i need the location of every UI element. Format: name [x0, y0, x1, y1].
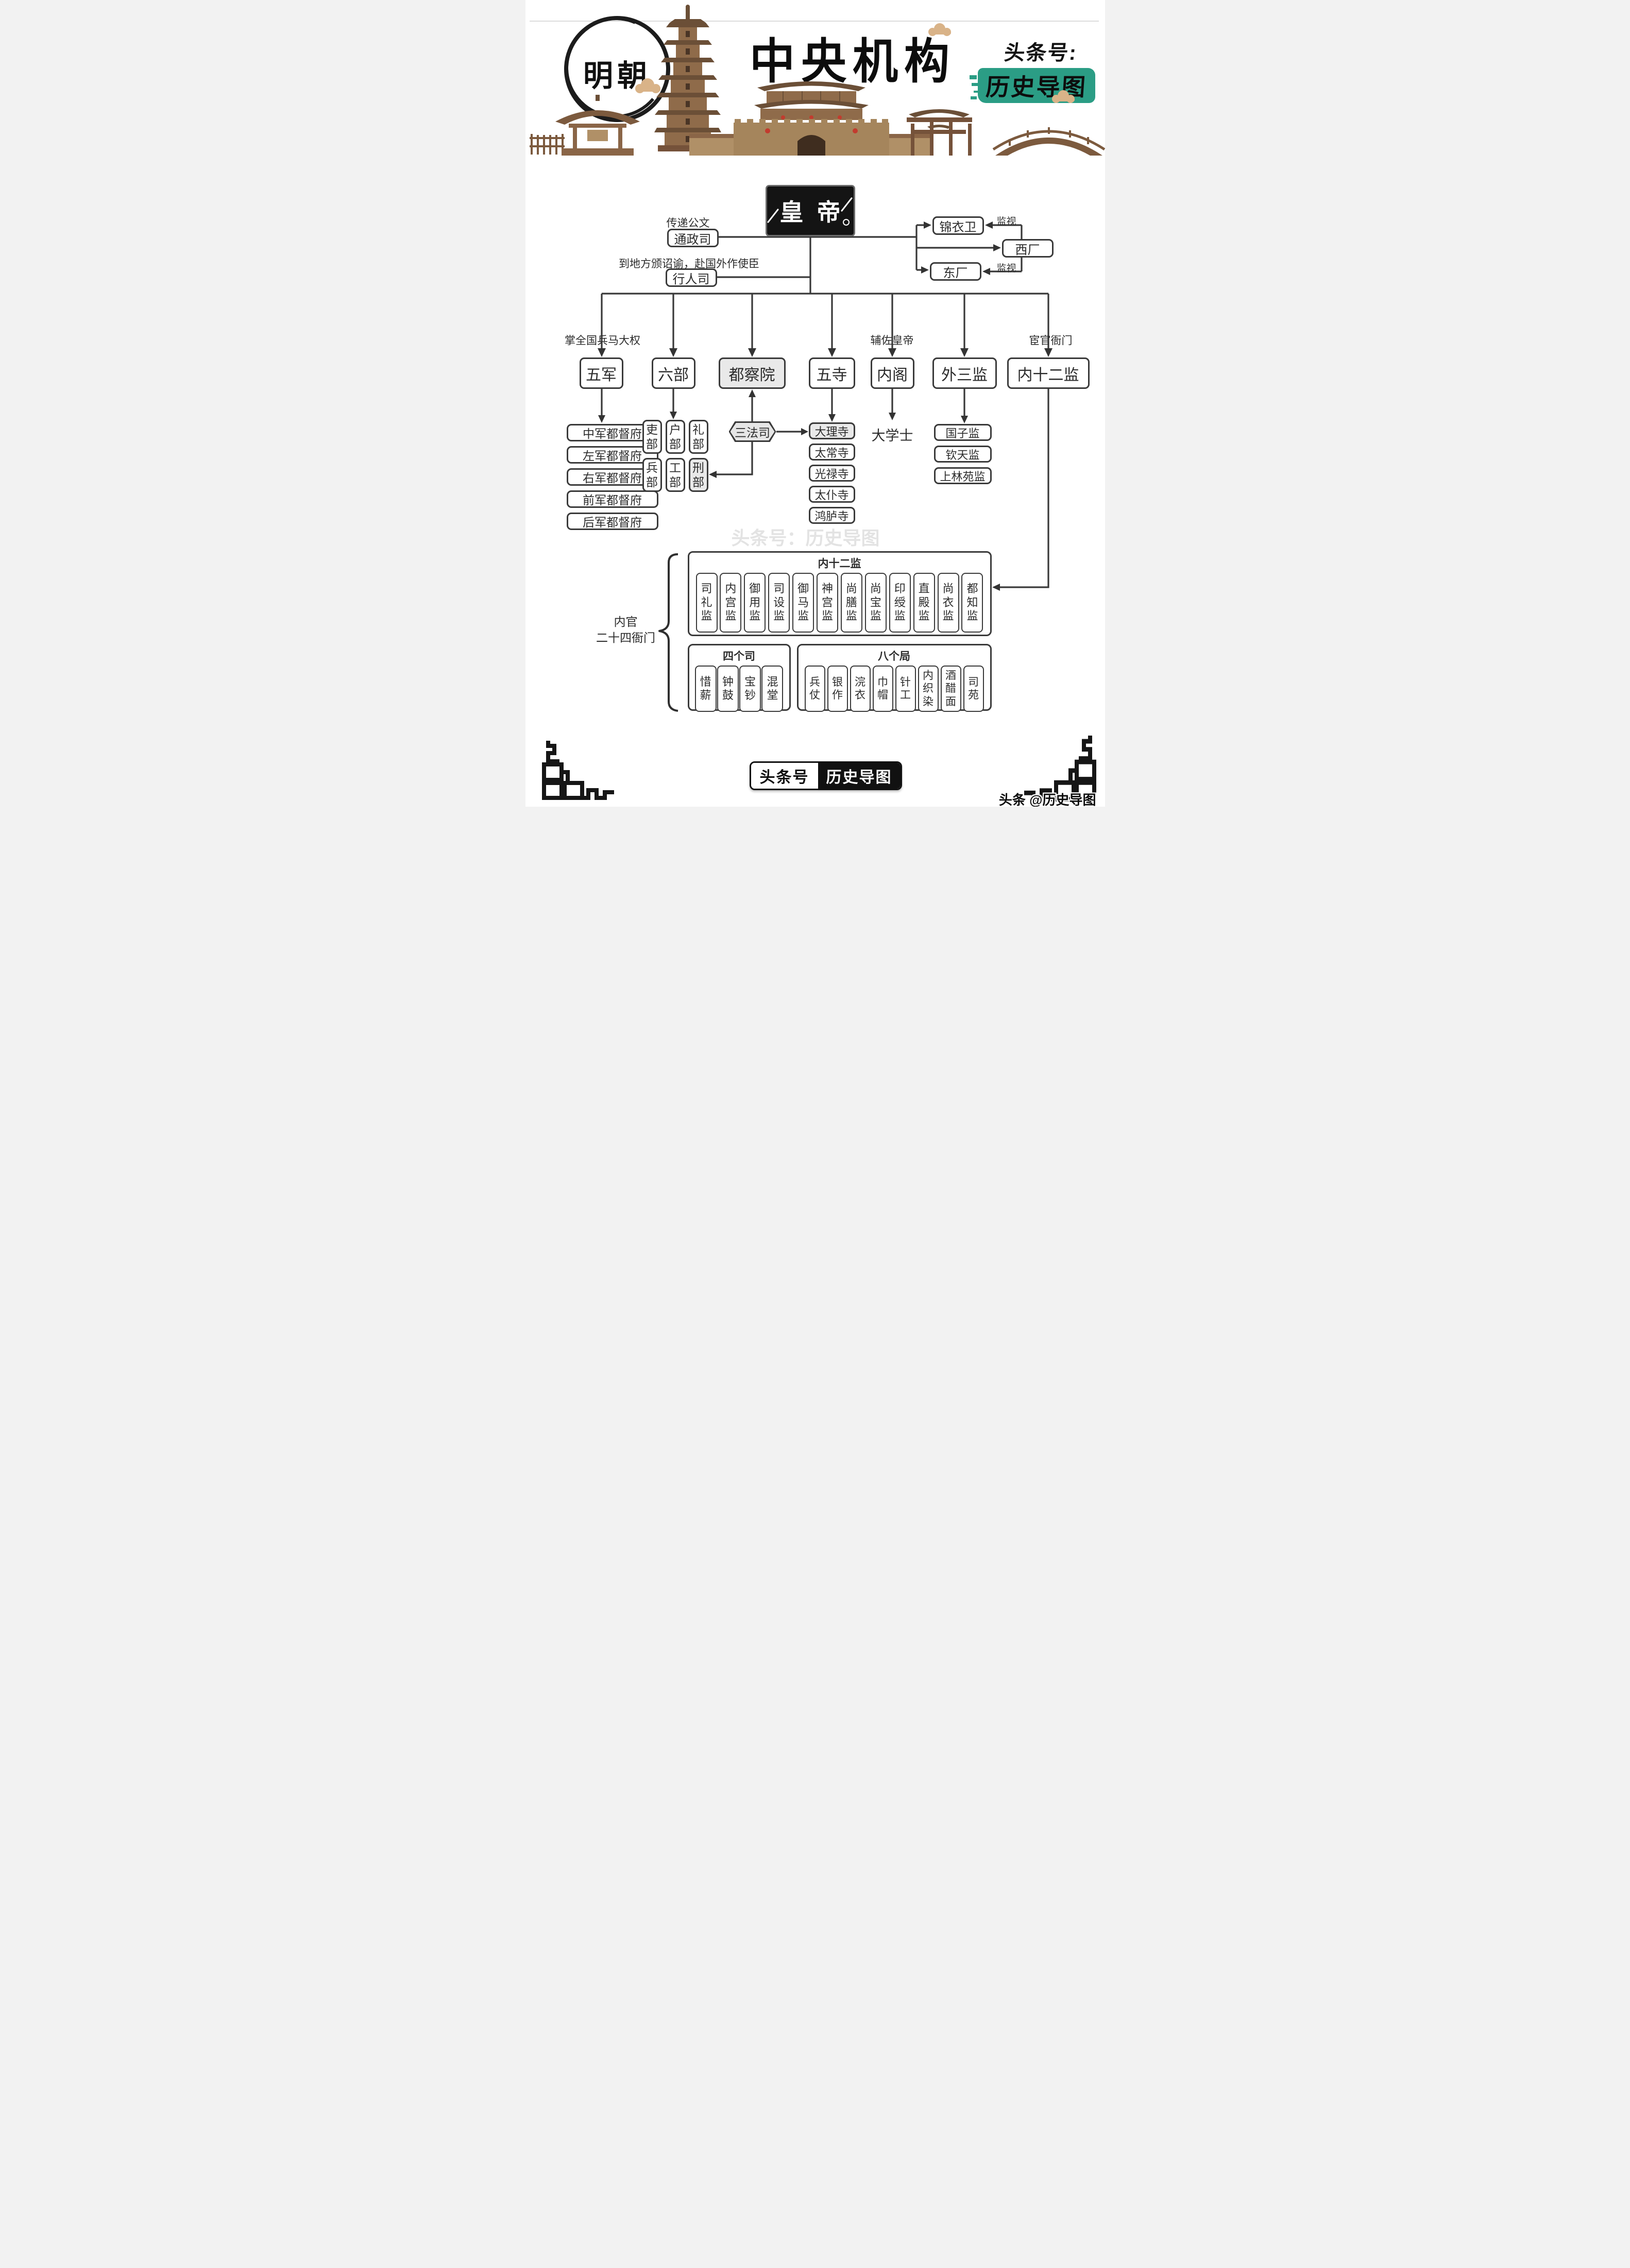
box-duchayuan: 都察院	[719, 357, 786, 389]
footer-badge-right: 历史导图	[818, 763, 901, 789]
footer-badge-left: 头条号	[751, 763, 818, 789]
box-jinyiwei: 锦衣卫	[932, 216, 984, 235]
box-taichangsi: 太常寺	[809, 444, 855, 461]
infographic-page: 明朝 中央机构 头条号: 历史导图	[525, 0, 1105, 807]
box-ministry-libu: 吏部	[642, 420, 662, 454]
box-yumajian: 御马监	[792, 573, 814, 633]
box-ministry-bingbu: 兵部	[642, 458, 662, 492]
box-tongzhengsi: 通政司	[667, 229, 719, 247]
box-ministry-gongbu: 工部	[666, 458, 685, 492]
box-yuyongjian: 御用监	[744, 573, 766, 633]
box-zhidianjian: 直殿监	[913, 573, 935, 633]
box-taipusi: 太仆寺	[809, 486, 855, 503]
bracket-label-line1: 内官	[582, 614, 670, 630]
box-ministry-ritesbu: 礼部	[689, 420, 708, 454]
hexagon-sanfasi: 三法司	[729, 421, 776, 442]
note-monitor-top: 监视	[992, 214, 1022, 228]
brush-slash-left	[767, 209, 778, 224]
brush-ring-dot	[843, 219, 850, 226]
box-neishierjian: 内十二监	[1007, 357, 1090, 389]
group-four-si: 四个司 惜薪 钟鼓 宝钞 混堂	[688, 644, 791, 711]
box-yinshoujian: 印绶监	[889, 573, 911, 633]
note-monitor-bottom: 监视	[992, 261, 1022, 275]
footer-badge: 头条号 历史导图	[750, 761, 902, 790]
box-yinzuo: 银作	[827, 666, 848, 712]
watermark-center: 头条号：历史导图	[732, 523, 880, 550]
box-dalisi: 大理寺	[809, 422, 855, 439]
box-qintianjian: 钦天监	[934, 446, 992, 463]
emperor-box: 皇帝	[766, 185, 855, 236]
box-huanyi: 浣衣	[850, 666, 871, 712]
box-bingzhang: 兵仗	[805, 666, 825, 712]
corner-ornament-left	[537, 741, 614, 800]
box-shangyijian: 尚衣监	[938, 573, 959, 633]
box-hungtang: 混堂	[761, 666, 783, 712]
box-duzhijian: 都知监	[961, 573, 983, 633]
eight-ju-title: 八个局	[799, 648, 990, 663]
note-neishierjian: 宦官衙门	[1007, 332, 1095, 348]
box-ministry-hubu: 户部	[666, 420, 685, 454]
group-eight-ju: 八个局 兵仗 银作 浣衣 巾帽 针工 内织染 酒醋面 司苑	[797, 644, 992, 711]
bracket-label-line2: 二十四衙门	[582, 630, 670, 646]
box-shanglinyuanjian: 上林苑监	[934, 467, 992, 484]
box-dudufu-rear: 后军都督府	[567, 513, 658, 530]
note-tongzheng: 传递公文	[652, 215, 724, 230]
box-dudufu-front: 前军都督府	[567, 490, 658, 508]
box-honglusi: 鸿胪寺	[809, 507, 855, 524]
box-silijian: 司礼监	[696, 573, 718, 633]
label-daxueshi: 大学士	[863, 424, 922, 445]
box-sishejian: 司设监	[768, 573, 790, 633]
box-siyuan: 司苑	[963, 666, 984, 712]
box-xichang: 西厂	[1002, 239, 1054, 258]
watermark-bottom-right: 头条 @历史导图	[963, 790, 1096, 807]
note-wujun: 掌全国兵马大权	[556, 332, 649, 348]
box-waisanjian: 外三监	[932, 357, 997, 389]
box-jiucumian: 酒醋面	[941, 666, 961, 712]
box-ministry-xingbu: 刑部	[689, 458, 708, 492]
box-wujun: 五军	[580, 357, 623, 389]
box-guozijian: 国子监	[934, 424, 992, 441]
box-xingrensi: 行人司	[666, 268, 717, 287]
box-jinmao: 巾帽	[873, 666, 893, 712]
box-shengongjian: 神宫监	[817, 573, 838, 633]
box-neigongjian: 内宫监	[720, 573, 741, 633]
box-shangbaojian: 尚宝监	[865, 573, 887, 633]
inner-twelve-title: 内十二监	[689, 555, 990, 571]
box-neizhiran: 内织染	[918, 666, 939, 712]
box-liubu: 六部	[652, 357, 695, 389]
box-baochao: 宝钞	[739, 666, 761, 712]
box-dongchang: 东厂	[930, 262, 981, 281]
box-guanglusi: 光禄寺	[809, 465, 855, 482]
box-shangshanjian: 尚膳监	[841, 573, 862, 633]
sanfasi-label: 三法司	[729, 421, 776, 442]
bracket-label: 内官 二十四衙门	[582, 614, 670, 646]
box-zhonggu: 钟鼓	[717, 666, 739, 712]
note-neige: 辅佐皇帝	[848, 332, 936, 348]
box-zhengong: 针工	[895, 666, 916, 712]
four-si-title: 四个司	[689, 648, 789, 663]
box-wusi: 五寺	[809, 357, 855, 389]
group-inner-twelve: 内十二监 司礼监 内宫监 御用监 司设监 御马监 神宫监 尚膳监 尚宝监 印绶监…	[688, 551, 992, 636]
box-neige: 内阁	[871, 357, 914, 389]
box-xixin: 惜薪	[695, 666, 717, 712]
